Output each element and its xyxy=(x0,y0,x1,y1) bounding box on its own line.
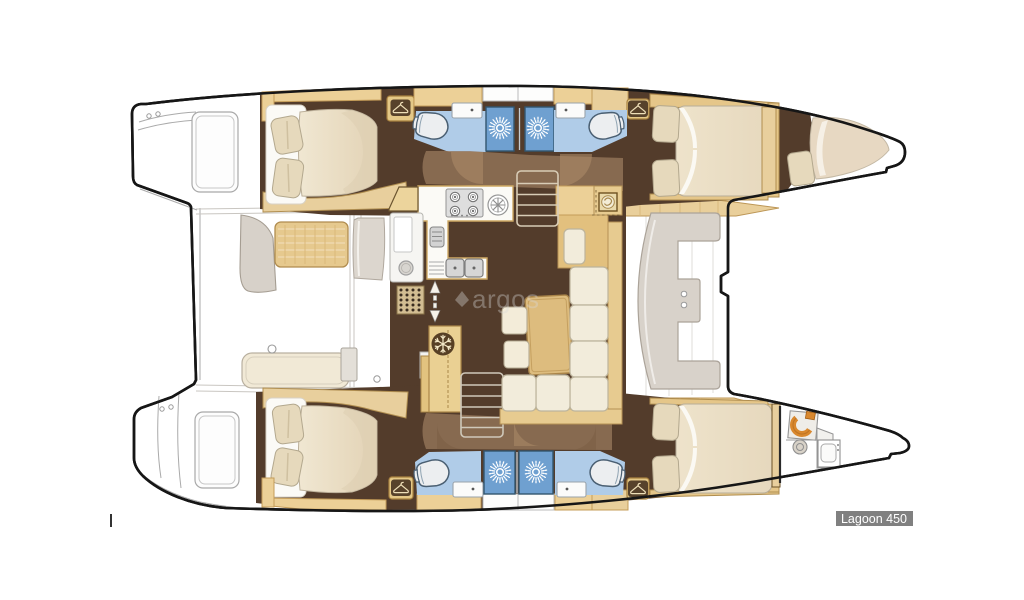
svg-text:Lagoon 450: Lagoon 450 xyxy=(841,512,907,526)
svg-text:argos: argos xyxy=(472,284,540,314)
